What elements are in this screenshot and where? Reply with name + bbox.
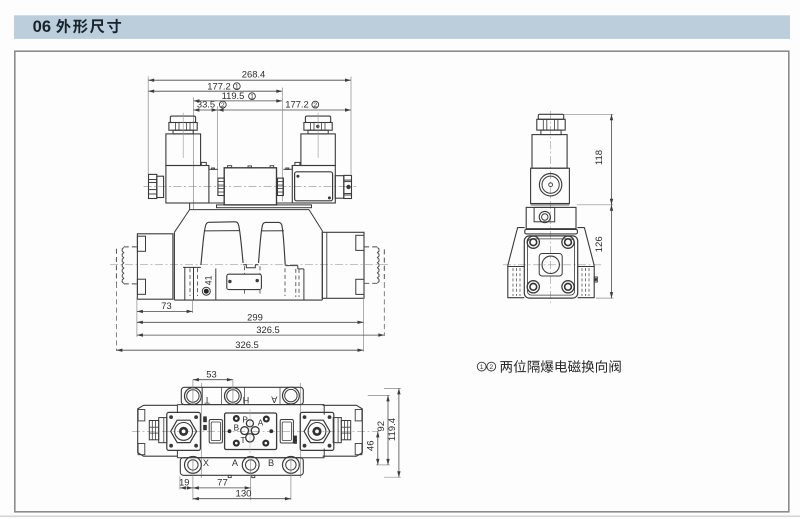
svg-text:41: 41 — [203, 275, 213, 285]
svg-text:P: P — [242, 415, 248, 424]
svg-text:119.5: 119.5 — [222, 90, 245, 101]
svg-text:46: 46 — [365, 440, 376, 451]
svg-text:92: 92 — [376, 421, 387, 432]
svg-text:119.4: 119.4 — [387, 417, 398, 441]
svg-text:1: 1 — [480, 364, 484, 371]
svg-text:T: T — [204, 395, 210, 405]
svg-text:326.5: 326.5 — [235, 339, 258, 350]
svg-text:268.4: 268.4 — [242, 69, 265, 80]
svg-text:77: 77 — [217, 478, 228, 489]
svg-text:A: A — [270, 394, 277, 404]
svg-text:X: X — [203, 458, 209, 468]
svg-text:118: 118 — [594, 150, 605, 165]
svg-text:A: A — [232, 458, 239, 468]
svg-text:B: B — [268, 458, 274, 468]
svg-text:2: 2 — [489, 364, 493, 371]
svg-text:T: T — [240, 436, 245, 445]
svg-text:19: 19 — [179, 478, 189, 488]
svg-text:299: 299 — [247, 311, 263, 322]
svg-text:06: 06 — [33, 17, 51, 36]
svg-text:33.5: 33.5 — [197, 99, 215, 110]
svg-text:2: 2 — [221, 102, 225, 109]
svg-text:B: B — [234, 423, 240, 432]
svg-text:53: 53 — [206, 368, 216, 379]
svg-text:2: 2 — [313, 102, 317, 109]
svg-text:326.5: 326.5 — [256, 324, 279, 335]
svg-text:126: 126 — [594, 236, 605, 252]
svg-text:130: 130 — [235, 489, 251, 500]
svg-text:H: H — [243, 396, 250, 406]
svg-text:1: 1 — [250, 94, 254, 101]
svg-text:177.2: 177.2 — [285, 99, 308, 110]
svg-text:A: A — [258, 418, 264, 427]
svg-text:73: 73 — [161, 300, 171, 311]
